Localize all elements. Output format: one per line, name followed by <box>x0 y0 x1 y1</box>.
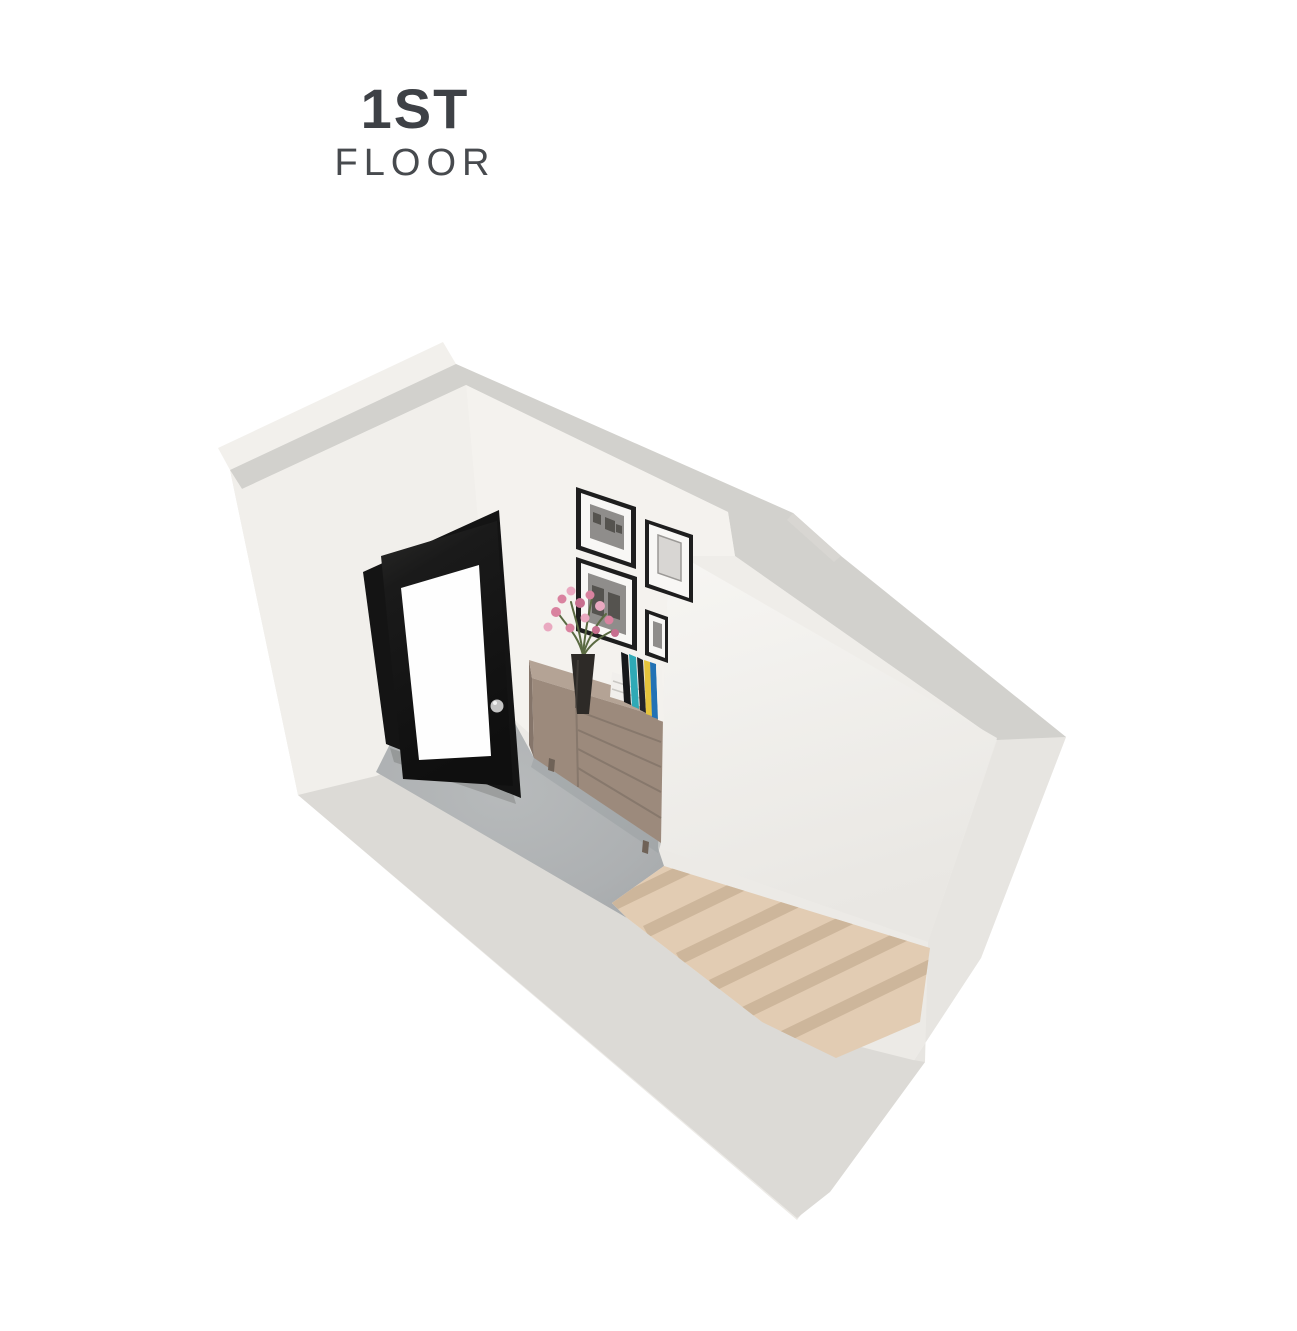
sideboard-leg <box>642 840 649 854</box>
sideboard-leg <box>548 758 555 772</box>
floorplan-3d-render <box>0 0 1297 1331</box>
door-knob <box>491 700 504 713</box>
picture-frame-bottom-right <box>645 609 668 663</box>
door-knob-highlight <box>493 701 497 705</box>
